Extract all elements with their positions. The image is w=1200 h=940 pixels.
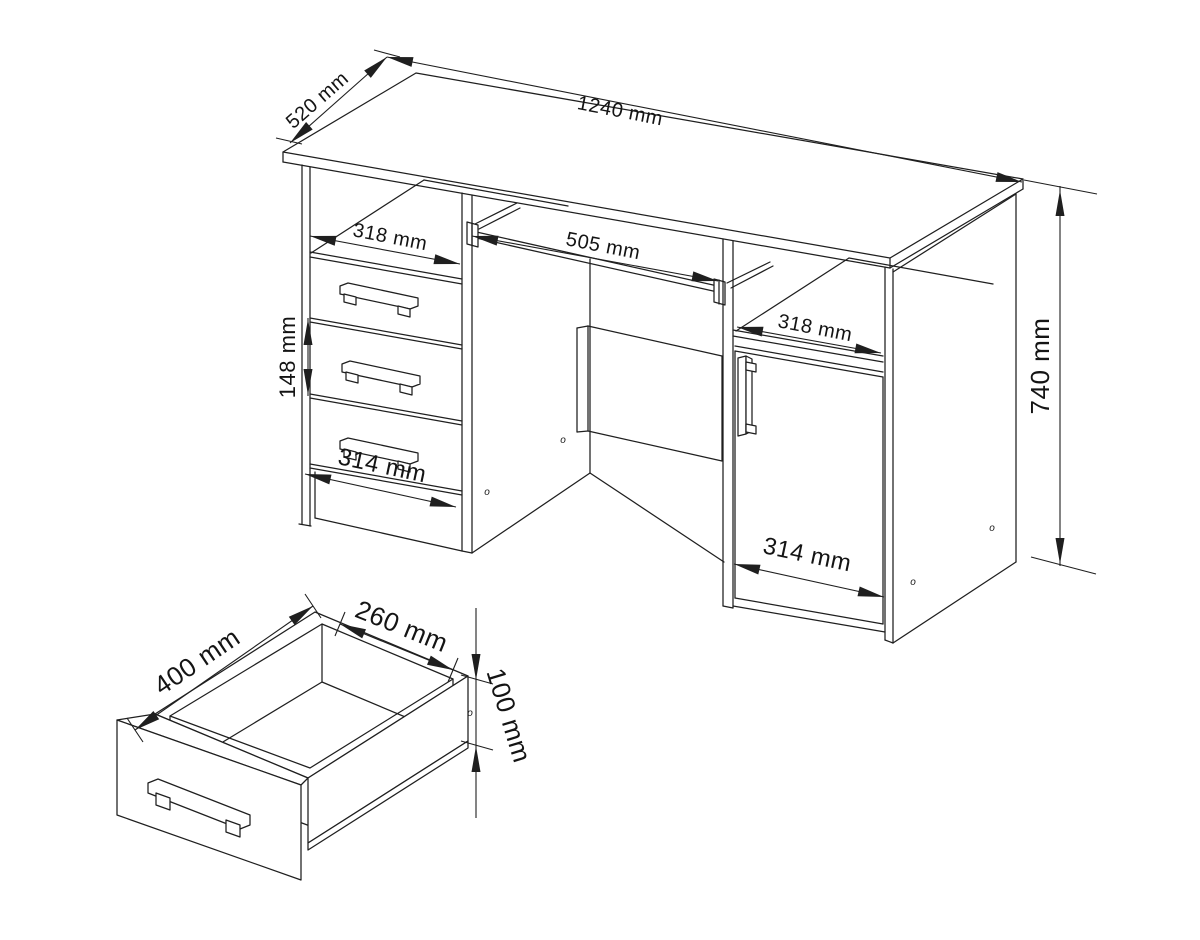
svg-text:740 mm: 740 mm <box>1025 318 1055 415</box>
hole-mark: o <box>467 708 473 719</box>
svg-text:100 mm: 100 mm <box>481 665 538 766</box>
drawer-detail-view: o 400 mm 260 mm 100 mm <box>117 594 538 880</box>
dimension-drawer-width: 260 mm <box>335 594 458 682</box>
dimension-left-front-width: 314 mm <box>305 443 456 507</box>
cabinet-door <box>735 346 883 624</box>
dimension-desk-height: 740 mm <box>1024 180 1097 574</box>
dimension-drawer-pitch: 148 mm <box>275 316 313 398</box>
svg-text:148 mm: 148 mm <box>275 316 300 398</box>
hole-mark: o <box>989 523 995 534</box>
desk-view: o o o o 520 mm 1240 mm 318 mm <box>275 50 1097 643</box>
svg-text:314 mm: 314 mm <box>761 532 854 577</box>
hole-mark: o <box>910 577 916 588</box>
svg-text:318 mm: 318 mm <box>351 219 429 255</box>
hole-mark: o <box>560 435 566 446</box>
right-side-panel <box>885 194 1016 643</box>
furniture-dimension-diagram: o o o o 520 mm 1240 mm 318 mm <box>0 0 1200 940</box>
left-pedestal <box>299 165 568 553</box>
dimension-right-front-width: 314 mm <box>734 532 884 597</box>
drawer-front-2 <box>342 361 420 395</box>
technical-drawing-canvas: o o o o 520 mm 1240 mm 318 mm <box>0 0 1200 940</box>
svg-text:505 mm: 505 mm <box>564 228 642 264</box>
door-handle-icon <box>738 356 756 436</box>
back-panel <box>577 326 722 461</box>
drawer-front-1 <box>340 283 418 317</box>
dimension-left-opening: 318 mm <box>310 219 460 264</box>
dimension-tray-width: 505 mm <box>472 228 718 281</box>
hole-mark: o <box>484 487 490 498</box>
svg-text:400 mm: 400 mm <box>148 622 245 701</box>
right-pedestal <box>723 239 993 632</box>
